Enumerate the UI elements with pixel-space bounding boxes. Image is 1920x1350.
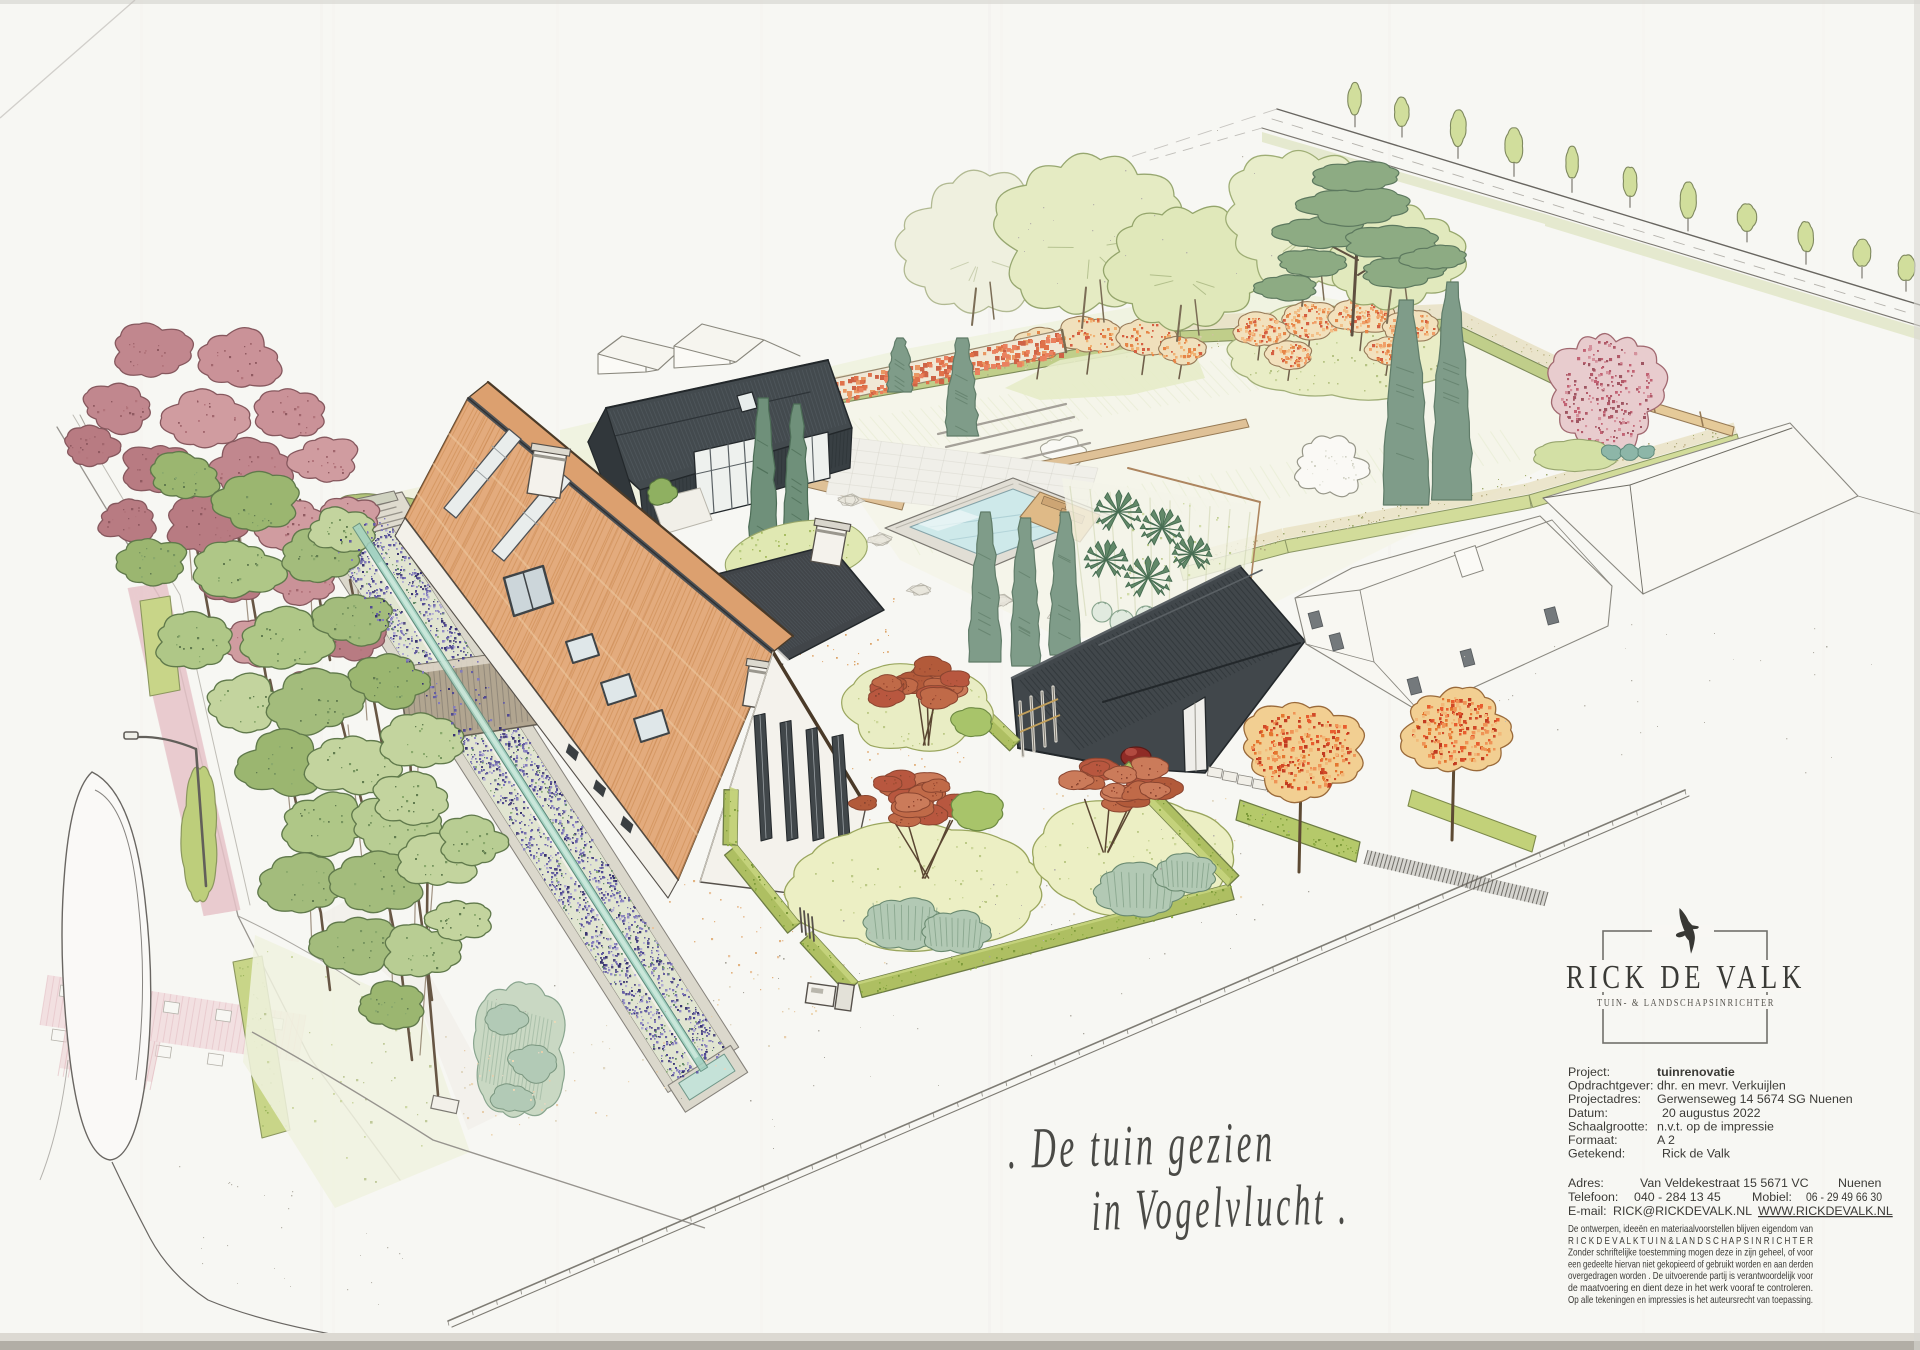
svg-text:R I C K D E V A L K T U: R I C K D E V A L K T U I N & L A N D S … [1568,1236,1813,1247]
svg-text:dhr. en mevr. Verkuijlen: dhr. en mevr. Verkuijlen [1657,1079,1786,1093]
svg-text:Schaalgrootte:: Schaalgrootte: [1568,1119,1648,1133]
svg-text:RICK DE VALK: RICK DE VALK [1566,959,1806,996]
svg-text:TUIN- & LANDSCHAPSINRICHTER: TUIN- & LANDSCHAPSINRICHTER [1597,997,1775,1009]
svg-text:Telefoon:: Telefoon: [1568,1190,1618,1204]
svg-text:040 - 284 13 45: 040 - 284 13 45 [1634,1190,1721,1204]
svg-text:een gedeelte hiervan niet geko: een gedeelte hiervan niet gekopieerd of … [1568,1259,1813,1270]
svg-text:tuinrenovatie: tuinrenovatie [1657,1065,1735,1079]
svg-text:06 - 29 49 66 30: 06 - 29 49 66 30 [1806,1190,1882,1204]
svg-text:RICK@RICKDEVALK.NL: RICK@RICKDEVALK.NL [1613,1204,1752,1218]
svg-text:Formaat:: Formaat: [1568,1133,1618,1147]
svg-text:in Vogelvlucht .: in Vogelvlucht . [1091,1171,1351,1243]
svg-text:Van Veldekestraat 15 5671: Van Veldekestraat 15 5671 VC [1640,1176,1809,1190]
svg-text:Getekend:: Getekend: [1568,1147,1625,1161]
svg-text:Rick de Valk: Rick de Valk [1657,1147,1731,1161]
svg-text:Op alle tekeningen en impressi: Op alle tekeningen en impressies is het … [1568,1295,1813,1306]
svg-text:Projectadres:: Projectadres: [1568,1092,1641,1106]
svg-text:Gerwenseweg 14 5674 SG Nuen: Gerwenseweg 14 5674 SG Nuenen [1657,1092,1853,1106]
svg-text:Adres:: Adres: [1568,1176,1604,1190]
svg-text:E-mail:: E-mail: [1568,1204,1607,1218]
svg-text:Opdrachtgever:: Opdrachtgever: [1568,1079,1653,1093]
svg-text:Datum:: Datum: [1568,1106,1608,1120]
svg-text:WWW.RICKDEVALK.NL: WWW.RICKDEVALK.NL [1758,1204,1893,1218]
svg-text:overgedragen worden . De uitv: overgedragen worden . De uitvoerende par… [1568,1271,1813,1282]
svg-text:de maatvoering en dient deze i: de maatvoering en dient deze in het werk… [1568,1283,1813,1294]
svg-text:Mobiel:: Mobiel: [1752,1190,1792,1204]
svg-text:Nuenen: Nuenen [1838,1176,1882,1190]
svg-text:Project:: Project: [1568,1065,1610,1079]
svg-text:A 2: A 2 [1657,1133,1675,1147]
svg-text:De ontwerpen, ideeën en materi: De ontwerpen, ideeën en materiaalvoorste… [1568,1224,1813,1235]
svg-text:Zonder schriftelijke toestemmi: Zonder schriftelijke toestemming mogen d… [1568,1248,1813,1259]
svg-text:. De tuin gezien: . De tuin gezien [1007,1109,1277,1181]
svg-text:20 augustus 2022: 20 augustus 2022 [1657,1106,1761,1120]
svg-text:n.v.t. op de impressie: n.v.t. op de impressie [1657,1119,1774,1133]
